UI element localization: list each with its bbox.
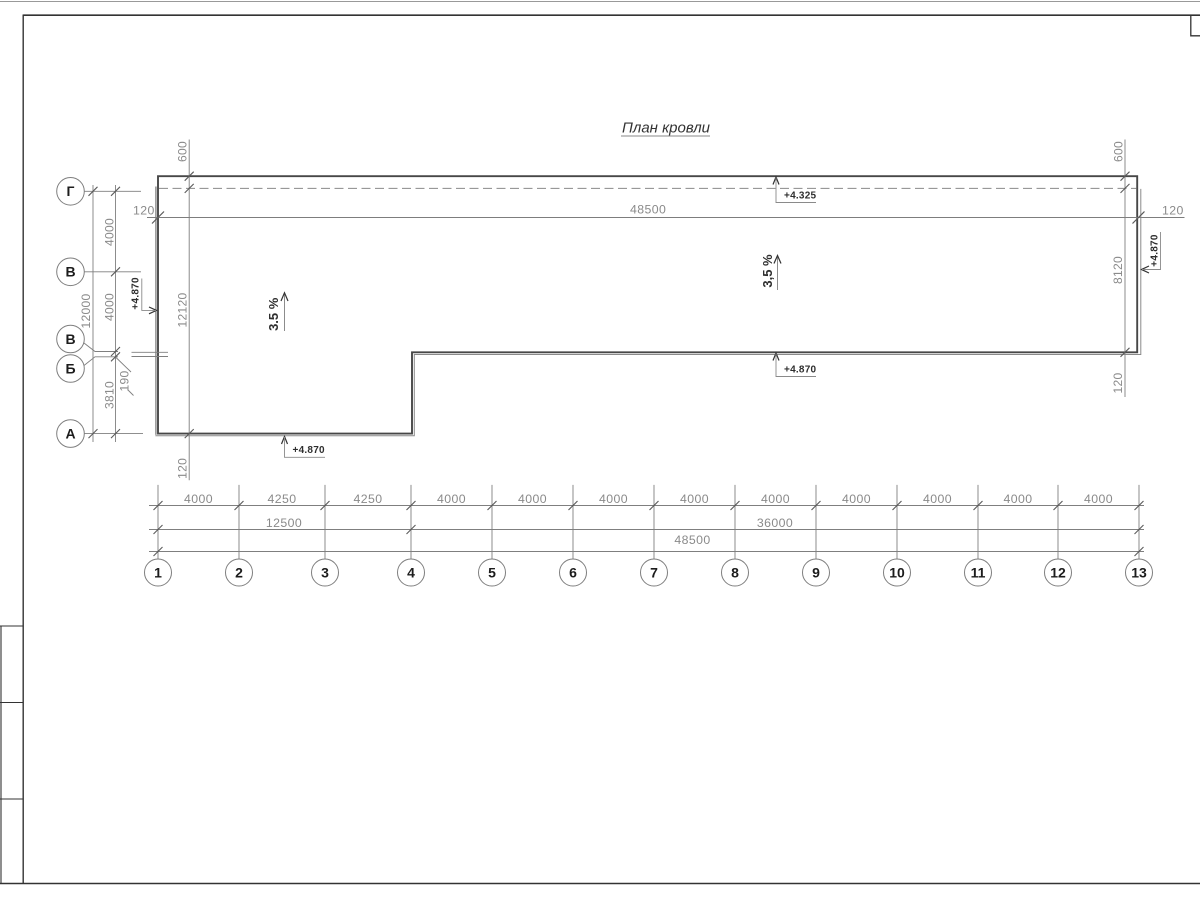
svg-text:190: 190 [118, 371, 132, 392]
svg-text:600: 600 [176, 141, 190, 162]
svg-text:120: 120 [1162, 204, 1184, 218]
svg-text:2: 2 [235, 564, 243, 580]
svg-text:+4.870: +4.870 [784, 365, 817, 376]
svg-text:12: 12 [1050, 564, 1066, 580]
svg-text:4000: 4000 [1004, 492, 1033, 506]
svg-text:120: 120 [176, 458, 190, 479]
svg-text:8: 8 [731, 564, 739, 580]
svg-text:4250: 4250 [268, 492, 297, 506]
svg-text:3810: 3810 [103, 381, 117, 409]
svg-text:12120: 12120 [176, 293, 190, 328]
svg-text:3.5 %: 3.5 % [266, 297, 281, 331]
svg-text:4000: 4000 [680, 492, 709, 506]
svg-text:4000: 4000 [1084, 492, 1113, 506]
svg-text:4000: 4000 [518, 492, 547, 506]
svg-text:4: 4 [407, 564, 415, 580]
svg-text:Б: Б [65, 360, 75, 376]
svg-text:4000: 4000 [437, 492, 466, 506]
svg-text:В: В [65, 264, 75, 280]
svg-text:+4.870: +4.870 [131, 277, 142, 310]
svg-text:1: 1 [154, 564, 162, 580]
svg-text:4000: 4000 [184, 492, 213, 506]
svg-text:48500: 48500 [674, 533, 710, 547]
svg-text:+4.870: +4.870 [293, 445, 326, 456]
svg-text:5: 5 [488, 564, 496, 580]
svg-text:3: 3 [321, 564, 329, 580]
svg-text:10: 10 [889, 564, 905, 580]
svg-text:3,5 %: 3,5 % [760, 254, 775, 288]
svg-text:Г: Г [67, 183, 75, 199]
svg-text:36000: 36000 [757, 516, 793, 530]
svg-text:120: 120 [133, 204, 155, 218]
svg-text:12500: 12500 [266, 516, 302, 530]
svg-text:13: 13 [1131, 564, 1147, 580]
svg-text:4000: 4000 [599, 492, 628, 506]
svg-text:4000: 4000 [923, 492, 952, 506]
svg-text:4000: 4000 [761, 492, 790, 506]
svg-text:600: 600 [1112, 141, 1126, 162]
svg-text:+4.325: +4.325 [784, 191, 817, 202]
svg-text:4000: 4000 [103, 218, 117, 246]
svg-text:48500: 48500 [630, 203, 666, 217]
svg-text:8120: 8120 [1111, 256, 1125, 284]
svg-text:120: 120 [1111, 373, 1125, 394]
svg-text:4000: 4000 [842, 492, 871, 506]
svg-text:6: 6 [569, 564, 577, 580]
svg-text:А: А [65, 425, 75, 441]
svg-text:План кровли: План кровли [622, 120, 711, 137]
svg-text:7: 7 [650, 564, 658, 580]
svg-text:4250: 4250 [354, 492, 383, 506]
svg-text:4000: 4000 [103, 293, 117, 321]
svg-text:9: 9 [812, 564, 820, 580]
svg-text:В: В [65, 331, 75, 347]
svg-text:11: 11 [971, 564, 986, 580]
svg-text:+4.870: +4.870 [1150, 234, 1161, 267]
svg-text:12000: 12000 [79, 294, 93, 329]
